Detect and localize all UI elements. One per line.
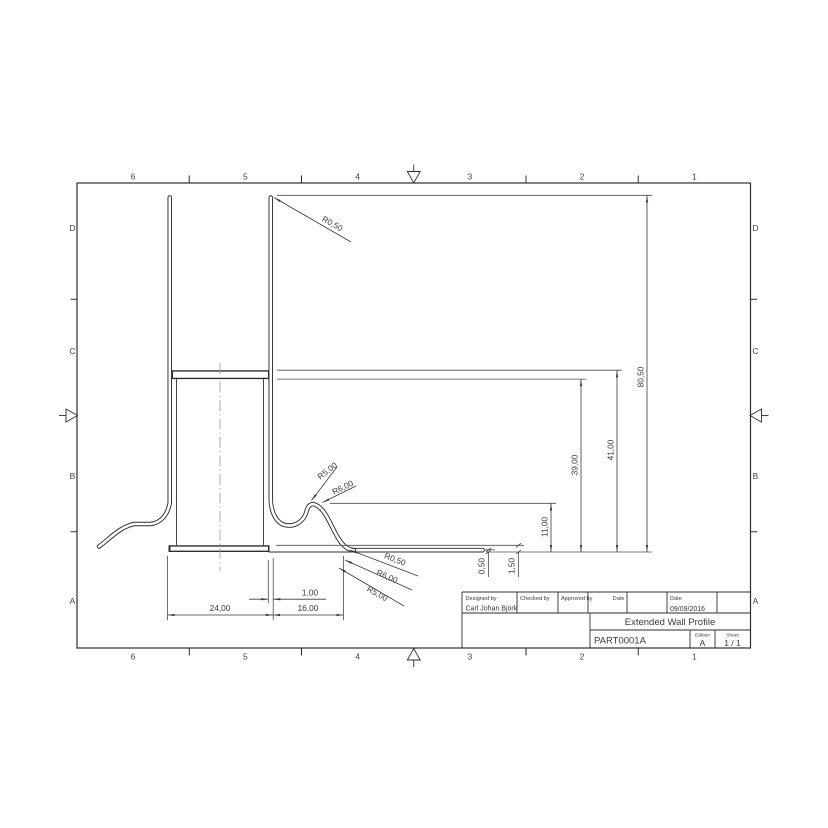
sheet-value: 1 / 1 — [724, 638, 741, 648]
dim-0-50-label: 0,50 — [477, 558, 487, 575]
row-label: A — [70, 596, 76, 606]
dim-11-label: 11,00 — [540, 517, 550, 538]
left-wall-outline — [99, 198, 170, 547]
col-label: 5 — [243, 172, 248, 182]
edition-value: A — [700, 638, 706, 648]
dim-1-label: 1,00 — [302, 588, 319, 598]
dim-39-label: 39,00 — [570, 454, 580, 475]
approved-by-label: Approved by — [561, 596, 593, 602]
date-value: 09/09/2016 — [670, 606, 705, 613]
title-block: Designed by Carl Johan Björk Checked by … — [462, 592, 751, 648]
row-label: B — [70, 471, 76, 481]
designed-by-label: Designed by — [466, 596, 497, 602]
checked-by-label: Checked by — [520, 596, 550, 602]
left-wall-fill — [99, 198, 170, 547]
center-mark-top-arrow — [407, 172, 420, 184]
radius-r5-mid-label: R5,00 — [315, 460, 339, 482]
dim-24-label: 24,00 — [210, 603, 231, 613]
col-label: 1 — [692, 172, 697, 182]
radius-r6-bot-label: R6,00 — [375, 567, 400, 585]
col-label: 5 — [243, 652, 248, 662]
row-label: C — [752, 346, 758, 356]
date2-label: Date — [670, 596, 682, 602]
cad-drawing-page: 80,50 41,00 39,00 11,00 1,50 0,50 24,00 … — [0, 0, 828, 828]
right-wall-fill — [271, 198, 354, 551]
frame-ticks — [71, 176, 758, 656]
date-label: Date — [613, 596, 625, 602]
designed-by-value: Carl Johan Björk — [466, 606, 518, 613]
dim-41-label: 41,00 — [606, 439, 616, 460]
center-mark-right-arrow — [750, 409, 762, 422]
row-label: A — [753, 596, 759, 606]
col-label: 6 — [131, 172, 136, 182]
dimension-texts: 80,50 41,00 39,00 11,00 1,50 0,50 24,00 … — [210, 214, 646, 613]
center-mark-left-arrow — [66, 409, 78, 422]
col-label: 4 — [355, 652, 360, 662]
col-label: 1 — [692, 652, 697, 662]
profile-geometry — [99, 198, 484, 572]
dim-1-50-label: 1,50 — [507, 558, 517, 575]
col-label: 3 — [468, 172, 473, 182]
radius-r5-bot-label: R5,00 — [365, 584, 390, 604]
dim-80-50-label: 80,50 — [636, 366, 646, 387]
center-mark-bottom-arrow — [407, 649, 420, 661]
col-label: 4 — [355, 172, 360, 182]
dim-16-label: 16,00 — [298, 603, 319, 613]
extension-lines — [168, 195, 653, 620]
leader-r050-top — [274, 198, 351, 243]
frame-border — [77, 183, 751, 648]
row-label: C — [69, 346, 75, 356]
col-label: 2 — [580, 652, 585, 662]
row-label: D — [69, 223, 75, 233]
drawing-sheet: 80,50 41,00 39,00 11,00 1,50 0,50 24,00 … — [0, 0, 828, 828]
row-label: D — [752, 223, 758, 233]
part-number: PART0001A — [594, 636, 647, 647]
right-wall-outline — [271, 198, 354, 551]
drawing-title: Extended Wall Profile — [625, 617, 715, 628]
col-label: 2 — [580, 172, 585, 182]
col-label: 3 — [468, 652, 473, 662]
col-label: 6 — [131, 652, 136, 662]
radius-r050-bot-label: R0,50 — [383, 551, 408, 568]
radius-r6-mid-label: R6,00 — [331, 478, 356, 497]
row-label: B — [753, 471, 759, 481]
radius-r050-top-label: R0,50 — [320, 214, 345, 234]
